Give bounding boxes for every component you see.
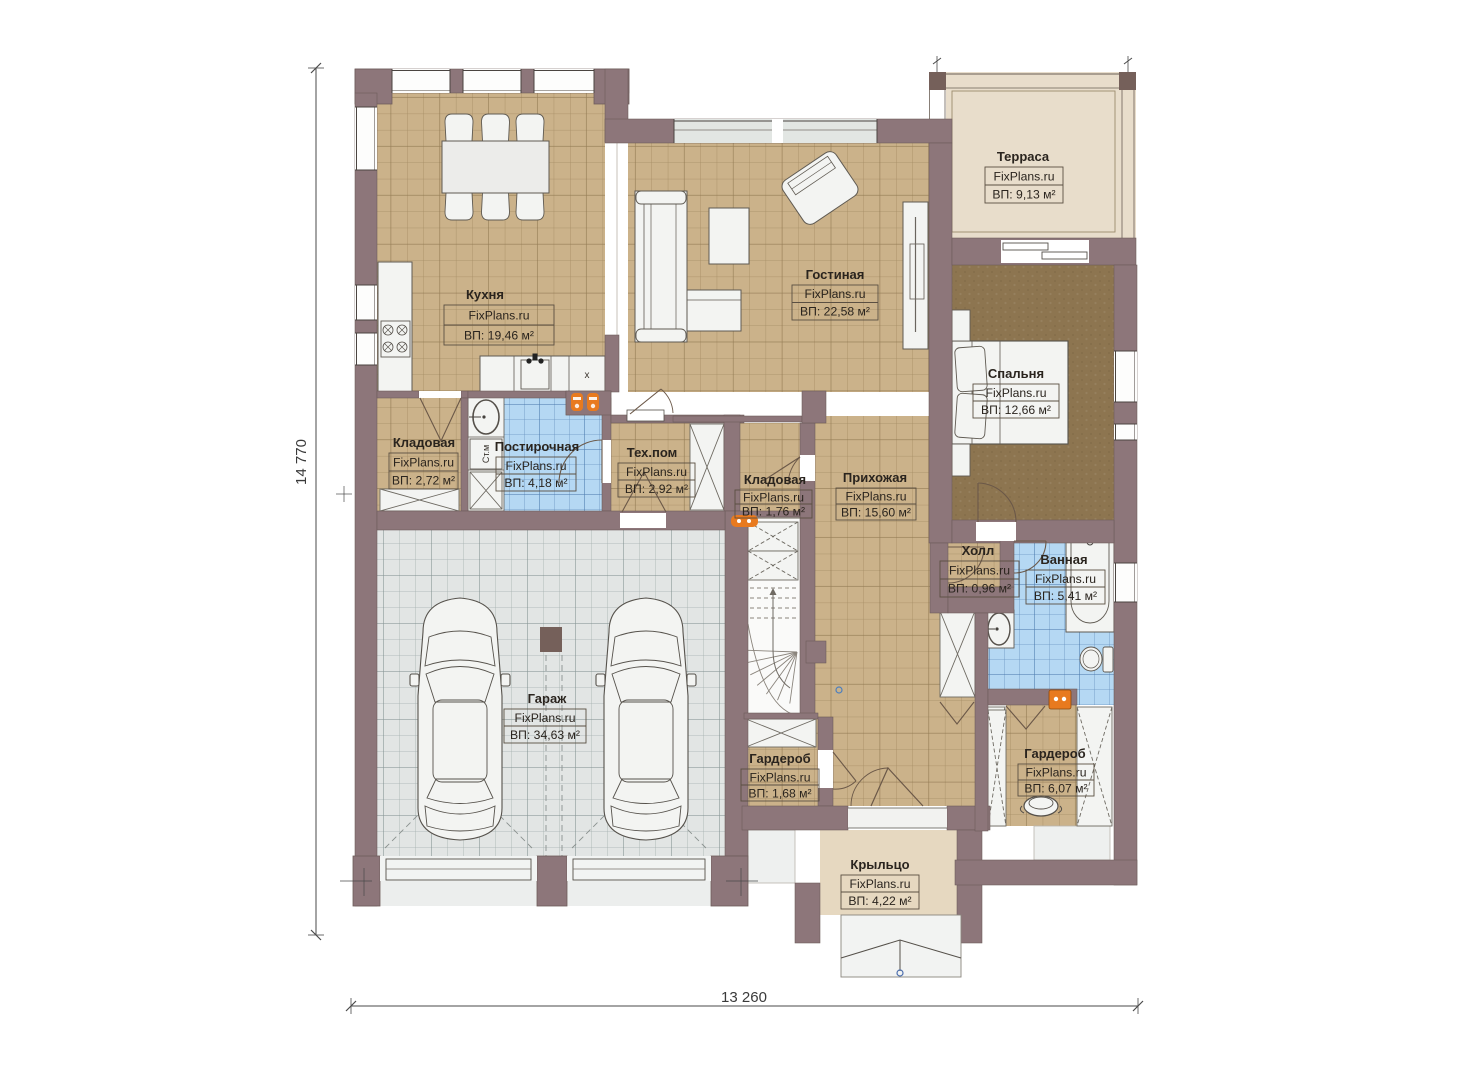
svg-text:FixPlans.ru: FixPlans.ru bbox=[469, 308, 530, 322]
svg-text:Постирочная: Постирочная bbox=[495, 439, 579, 454]
svg-text:FixPlans.ru: FixPlans.ru bbox=[805, 287, 866, 301]
svg-text:FixPlans.ru: FixPlans.ru bbox=[515, 711, 576, 725]
svg-text:Гардероб: Гардероб bbox=[749, 751, 810, 766]
svg-text:FixPlans.ru: FixPlans.ru bbox=[986, 386, 1047, 400]
svg-text:Гараж: Гараж bbox=[528, 691, 568, 706]
svg-text:ВП: 1,76 м²: ВП: 1,76 м² bbox=[742, 504, 805, 518]
svg-text:Тех.пом: Тех.пом bbox=[627, 445, 677, 460]
svg-text:ВП: 12,66 м²: ВП: 12,66 м² bbox=[981, 403, 1051, 417]
svg-text:FixPlans.ru: FixPlans.ru bbox=[626, 465, 687, 479]
svg-text:ВП: 4,18 м²: ВП: 4,18 м² bbox=[504, 476, 567, 490]
svg-text:FixPlans.ru: FixPlans.ru bbox=[846, 489, 907, 503]
svg-text:ВП: 2,72 м²: ВП: 2,72 м² bbox=[392, 473, 455, 487]
svg-text:Кухня: Кухня bbox=[466, 287, 504, 302]
svg-text:FixPlans.ru: FixPlans.ru bbox=[1035, 572, 1096, 586]
svg-text:Кладовая: Кладовая bbox=[744, 472, 806, 487]
svg-text:ВП: 1,68 м²: ВП: 1,68 м² bbox=[748, 786, 811, 800]
svg-text:Прихожая: Прихожая bbox=[843, 470, 907, 485]
svg-text:FixPlans.ru: FixPlans.ru bbox=[393, 455, 454, 469]
svg-text:Спальня: Спальня bbox=[988, 366, 1044, 381]
svg-text:FixPlans.ru: FixPlans.ru bbox=[750, 770, 811, 784]
svg-text:ВП: 15,60 м²: ВП: 15,60 м² bbox=[841, 505, 911, 519]
svg-text:ВП: 19,46 м²: ВП: 19,46 м² bbox=[464, 328, 534, 342]
svg-text:ВП: 0,96 м²: ВП: 0,96 м² bbox=[948, 581, 1011, 595]
svg-text:FixPlans.ru: FixPlans.ru bbox=[1026, 765, 1087, 779]
svg-text:FixPlans.ru: FixPlans.ru bbox=[850, 877, 911, 891]
svg-text:ВП: 2,92 м²: ВП: 2,92 м² bbox=[625, 482, 688, 496]
svg-text:Гардероб: Гардероб bbox=[1024, 746, 1085, 761]
svg-text:ВП: 6,07 м²: ВП: 6,07 м² bbox=[1024, 781, 1087, 795]
svg-text:ВП: 4,22 м²: ВП: 4,22 м² bbox=[848, 894, 911, 908]
svg-text:Ст.м: Ст.м bbox=[481, 445, 491, 463]
svg-text:FixPlans.ru: FixPlans.ru bbox=[506, 459, 567, 473]
svg-text:Ванная: Ванная bbox=[1040, 552, 1087, 567]
svg-text:14 770: 14 770 bbox=[293, 439, 310, 485]
svg-text:FixPlans.ru: FixPlans.ru bbox=[743, 490, 804, 504]
svg-text:ВП: 5,41 м²: ВП: 5,41 м² bbox=[1034, 589, 1097, 603]
svg-text:Кладовая: Кладовая bbox=[393, 435, 455, 450]
svg-text:ВП: 34,63 м²: ВП: 34,63 м² bbox=[510, 728, 580, 742]
svg-text:ВП: 9,13 м²: ВП: 9,13 м² bbox=[992, 187, 1055, 201]
svg-text:Гостиная: Гостиная bbox=[806, 267, 865, 282]
svg-text:Холл: Холл bbox=[962, 543, 995, 558]
svg-text:Терраса: Терраса bbox=[997, 149, 1050, 164]
svg-text:Крыльцо: Крыльцо bbox=[850, 857, 909, 872]
svg-text:FixPlans.ru: FixPlans.ru bbox=[949, 563, 1010, 577]
svg-text:FixPlans.ru: FixPlans.ru bbox=[994, 169, 1055, 183]
svg-text:ВП: 22,58 м²: ВП: 22,58 м² bbox=[800, 305, 870, 319]
svg-text:x: x bbox=[585, 370, 590, 381]
svg-text:13 260: 13 260 bbox=[721, 989, 767, 1006]
